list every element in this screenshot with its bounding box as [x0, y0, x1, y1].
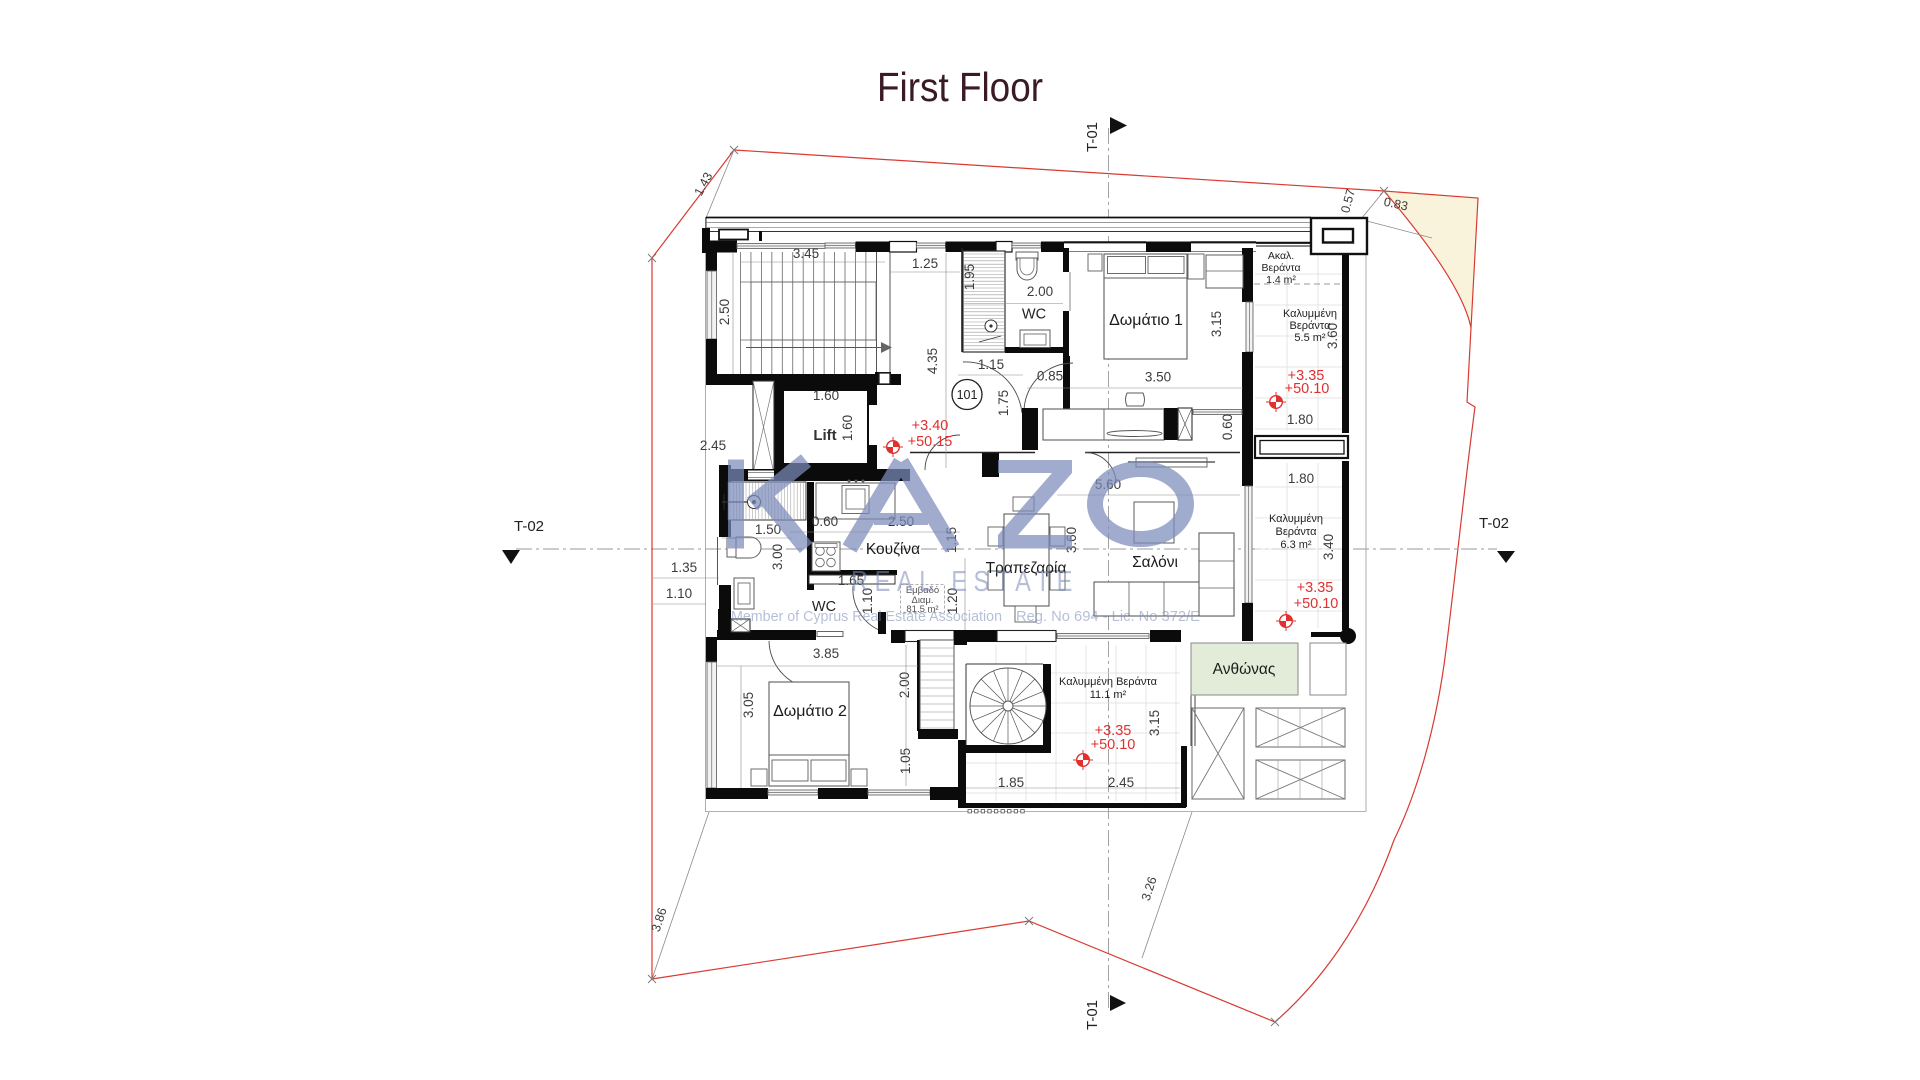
svg-text:REAL ESTATE: REAL ESTATE — [851, 566, 1079, 598]
svg-text:T-01: T-01 — [1084, 122, 1101, 152]
svg-text:0.60: 0.60 — [1220, 414, 1235, 440]
svg-text:+50.15: +50.15 — [908, 434, 953, 450]
svg-text:3.40: 3.40 — [1321, 534, 1336, 560]
svg-text:Ακαλ.: Ακαλ. — [1268, 250, 1294, 262]
svg-text:1.25: 1.25 — [912, 256, 938, 271]
svg-text:4.35: 4.35 — [925, 348, 940, 374]
svg-text:T-02: T-02 — [1479, 515, 1509, 532]
svg-text:Δωμάτιο 2: Δωμάτιο 2 — [773, 703, 847, 720]
svg-text:Βεράντα: Βεράντα — [1261, 262, 1300, 274]
svg-text:1.4 m²: 1.4 m² — [1266, 274, 1296, 286]
svg-text:1.60: 1.60 — [840, 415, 855, 441]
svg-text:3.05: 3.05 — [741, 692, 756, 718]
svg-text:3.60: 3.60 — [1325, 323, 1340, 349]
svg-text:1.15: 1.15 — [978, 357, 1004, 372]
svg-text:2.45: 2.45 — [700, 438, 726, 453]
svg-text:Δωμάτιο 1: Δωμάτιο 1 — [1109, 312, 1183, 329]
svg-text:Καλυμμένη Βεράντα: Καλυμμένη Βεράντα — [1059, 676, 1158, 688]
svg-text:5.5 m²: 5.5 m² — [1294, 332, 1326, 344]
svg-text:Lift: Lift — [813, 427, 836, 444]
svg-text:T-02: T-02 — [514, 518, 544, 535]
svg-text:0.60: 0.60 — [812, 514, 838, 529]
svg-text:101: 101 — [957, 388, 978, 402]
svg-text:T-01: T-01 — [1084, 1000, 1101, 1030]
svg-text:Καλυμμένη: Καλυμμένη — [1283, 308, 1337, 320]
svg-text:1.95: 1.95 — [962, 264, 977, 290]
svg-text:2.00: 2.00 — [1027, 284, 1053, 299]
svg-text:2.00: 2.00 — [897, 672, 912, 698]
svg-text:0.85: 0.85 — [1037, 369, 1063, 384]
svg-text:1.80: 1.80 — [1287, 412, 1313, 427]
svg-text:Βεράντα: Βεράντα — [1276, 526, 1318, 538]
svg-text:11.1 m²: 11.1 m² — [1090, 689, 1127, 701]
svg-text:3.45: 3.45 — [793, 246, 819, 261]
svg-text:1.05: 1.05 — [898, 748, 913, 774]
svg-text:6.3 m²: 6.3 m² — [1280, 539, 1312, 551]
svg-text:2.50: 2.50 — [717, 299, 732, 325]
svg-text:First Floor: First Floor — [877, 64, 1043, 110]
svg-text:Κουζίνα: Κουζίνα — [866, 541, 920, 558]
svg-text:Ανθώνας: Ανθώνας — [1213, 661, 1276, 678]
svg-text:1.10: 1.10 — [666, 586, 692, 601]
svg-text:Member of Cyprus Real Estate A: Member of Cyprus Real Estate Association — [731, 608, 1002, 625]
svg-text:1.75: 1.75 — [996, 390, 1011, 416]
svg-text:Σαλόνι: Σαλόνι — [1132, 554, 1178, 571]
svg-text:1.60: 1.60 — [813, 388, 839, 403]
svg-text:WC: WC — [1022, 307, 1046, 323]
svg-text:1.35: 1.35 — [671, 560, 697, 575]
svg-text:+50.10: +50.10 — [1285, 381, 1330, 397]
svg-text:Καλυμμένη: Καλυμμένη — [1269, 513, 1323, 525]
svg-text:+3.35: +3.35 — [1297, 580, 1334, 596]
svg-text:1.80: 1.80 — [1288, 471, 1314, 486]
svg-text:3.00: 3.00 — [770, 544, 785, 570]
svg-text:+50.10: +50.10 — [1091, 737, 1136, 753]
svg-text:+50.10: +50.10 — [1294, 596, 1339, 612]
svg-text:3.85: 3.85 — [813, 646, 839, 661]
svg-text:Reg. No 694 - Lic. No 372/E: Reg. No 694 - Lic. No 372/E — [1016, 608, 1200, 625]
svg-text:+3.40: +3.40 — [912, 418, 949, 434]
svg-text:3.15: 3.15 — [1147, 710, 1162, 736]
svg-text:3.15: 3.15 — [1209, 311, 1224, 337]
svg-text:3.50: 3.50 — [1145, 370, 1171, 385]
